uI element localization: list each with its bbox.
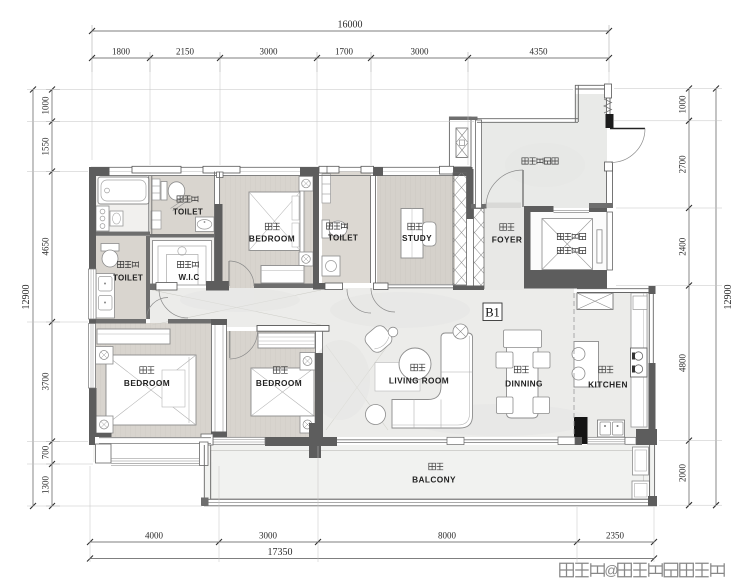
svg-text:12900: 12900 (21, 285, 32, 310)
svg-text:2700: 2700 (678, 155, 688, 174)
svg-text:BALCONY: BALCONY (412, 475, 456, 485)
svg-text:3000: 3000 (260, 47, 279, 57)
svg-text:4000: 4000 (145, 531, 164, 541)
svg-text:1550: 1550 (41, 137, 51, 156)
svg-text:2150: 2150 (176, 47, 195, 57)
svg-text:2400: 2400 (678, 237, 688, 256)
svg-text:12900: 12900 (723, 285, 734, 310)
svg-text:BEDROOM: BEDROOM (249, 234, 295, 244)
svg-text:FOYER: FOYER (492, 235, 523, 245)
svg-text:1000: 1000 (41, 96, 51, 115)
svg-text:W.I.C: W.I.C (178, 273, 199, 282)
svg-text:8000: 8000 (438, 531, 457, 541)
svg-text:4350: 4350 (530, 47, 549, 57)
svg-text:3000: 3000 (411, 47, 430, 57)
svg-text:TOILET: TOILET (113, 274, 143, 283)
svg-text:KITCHEN: KITCHEN (588, 380, 628, 390)
svg-text:3700: 3700 (41, 372, 51, 391)
svg-text:2350: 2350 (606, 531, 625, 541)
svg-text:4650: 4650 (41, 237, 51, 256)
svg-text:1000: 1000 (678, 95, 688, 114)
svg-text:LIVING ROOM: LIVING ROOM (389, 376, 449, 386)
svg-text:BEDROOM: BEDROOM (256, 378, 302, 388)
svg-text:700: 700 (41, 445, 51, 459)
svg-text:1800: 1800 (112, 47, 131, 57)
svg-text:1300: 1300 (41, 476, 51, 495)
svg-text:3000: 3000 (259, 531, 278, 541)
svg-text:DINNING: DINNING (505, 379, 543, 389)
svg-text:1700: 1700 (335, 47, 354, 57)
svg-text:TOILET: TOILET (328, 234, 358, 243)
svg-text:17350: 17350 (268, 547, 293, 558)
svg-text:16000: 16000 (338, 20, 363, 31)
svg-text:4800: 4800 (678, 354, 688, 373)
svg-text:BEDROOM: BEDROOM (124, 378, 170, 388)
svg-text:B1: B1 (485, 306, 500, 320)
svg-text:2000: 2000 (678, 464, 688, 483)
svg-text:@: @ (604, 562, 618, 578)
svg-text:STUDY: STUDY (402, 233, 432, 243)
svg-text:TOILET: TOILET (173, 208, 203, 217)
